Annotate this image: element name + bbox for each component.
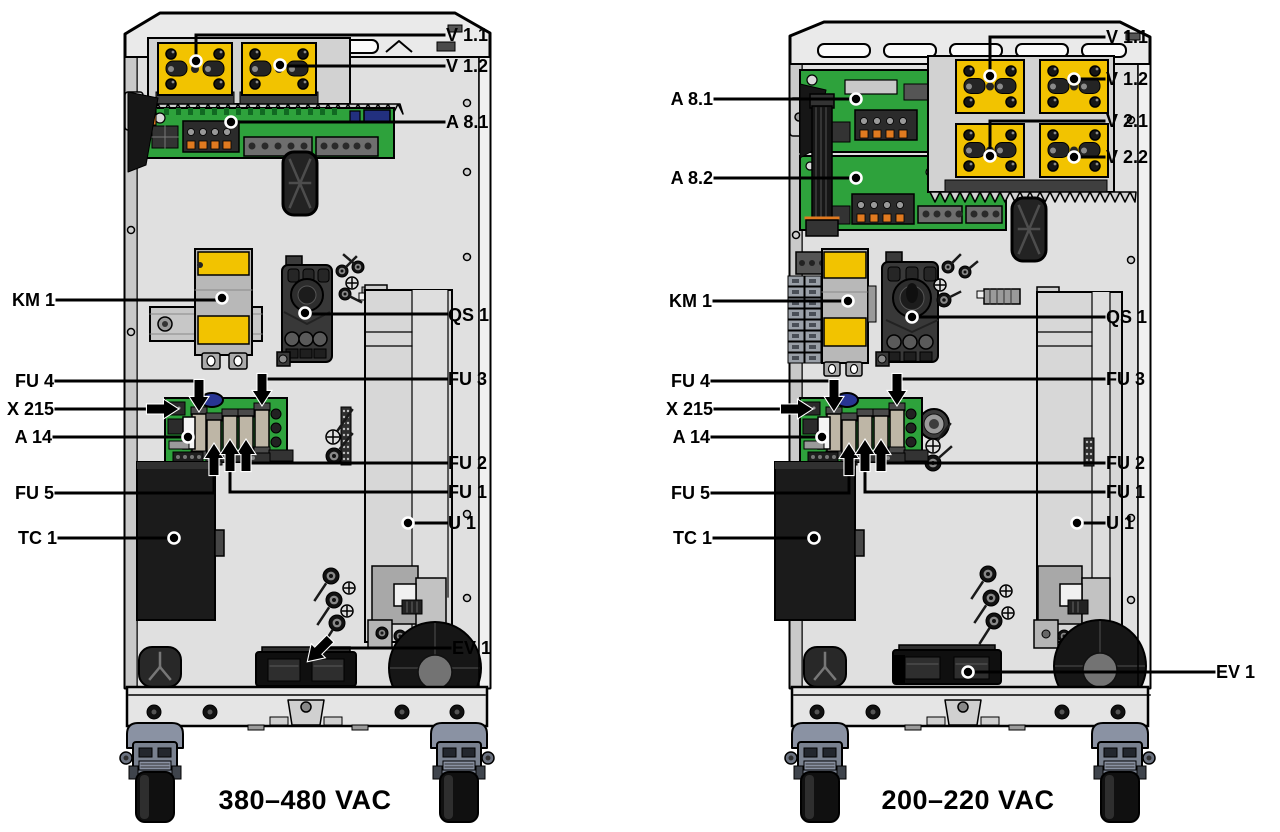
callout-label-qs1-200: QS 1 [1106, 306, 1147, 328]
callout-label-x215-200: X 215 [666, 398, 713, 420]
callout-label-ev1-380: EV 1 [452, 637, 491, 659]
fan-ev1 [256, 647, 356, 686]
callout-label-fu5-380: FU 5 [15, 482, 54, 504]
figure-cabinet-380-480 [120, 13, 494, 822]
callout-label-v11-380: V 1.1 [446, 24, 488, 46]
callout-label-u1-380: U 1 [448, 512, 476, 534]
callout-label-fu3-200: FU 3 [1106, 368, 1145, 390]
callout-label-fu1-200: FU 1 [1106, 481, 1145, 503]
callout-label-x215-380: X 215 [7, 398, 54, 420]
caster-front-left [120, 723, 183, 822]
callout-label-a14-380: A 14 [15, 426, 52, 448]
door-handle [1012, 198, 1046, 261]
callout-label-a82-200: A 8.2 [671, 167, 713, 189]
caption-200-220-vac: 200–220 VAC [881, 785, 1054, 816]
figure-cabinet-200-220 [775, 22, 1155, 822]
caster-front-right [431, 723, 494, 822]
fan-ev1 [893, 645, 1001, 684]
callout-label-fu2-200: FU 2 [1106, 452, 1145, 474]
cabinet-diagram-art [0, 0, 1280, 832]
callout-label-v12-200: V 1.2 [1106, 68, 1148, 90]
control-pcb-a81 [146, 108, 394, 158]
callout-cabinet-200-220-x215 [715, 400, 812, 418]
callout-label-fu2-380: FU 2 [448, 452, 487, 474]
caption-380-480-vac: 380–480 VAC [218, 785, 391, 816]
callout-label-ev1-200: EV 1 [1216, 661, 1255, 683]
transformer-tc1 [137, 462, 224, 620]
callout-label-fu1-380: FU 1 [448, 481, 487, 503]
callout-label-fu3-380: FU 3 [448, 368, 487, 390]
callout-label-fu4-200: FU 4 [671, 370, 710, 392]
power-module-v12 [1040, 60, 1108, 113]
callout-label-tc1-380: TC 1 [18, 527, 57, 549]
door-handle [283, 152, 317, 215]
callout-label-km1-380: KM 1 [12, 289, 55, 311]
callout-label-u1-200: U 1 [1106, 512, 1134, 534]
callout-label-a81-380: A 8.1 [446, 111, 488, 133]
callout-label-qs1-380: QS 1 [448, 304, 489, 326]
caster-front-left [785, 723, 848, 822]
cable-gland [804, 647, 846, 687]
caster-front-right [1092, 723, 1155, 822]
callout-label-a81-200: A 8.1 [671, 88, 713, 110]
callout-label-fu4-380: FU 4 [15, 370, 54, 392]
callout-label-tc1-200: TC 1 [673, 527, 712, 549]
breaker-qs1 [876, 252, 938, 366]
cable-gland [139, 647, 181, 687]
callout-label-v12-380: V 1.2 [446, 55, 488, 77]
callout-label-fu5-200: FU 5 [671, 482, 710, 504]
technical-diagram-canvas: 380–480 VAC 200–220 VAC V 1.1V 1.2A 8.1K… [0, 0, 1280, 832]
callout-label-a14-200: A 14 [673, 426, 710, 448]
contactor-km1 [195, 249, 252, 369]
callout-label-km1-200: KM 1 [669, 290, 712, 312]
callout-label-v21-200: V 2.1 [1106, 110, 1148, 132]
callout-label-v22-200: V 2.2 [1106, 146, 1148, 168]
callout-label-v11-200: V 1.1 [1106, 26, 1148, 48]
contactor-km1 [822, 249, 876, 376]
base-left [127, 687, 487, 730]
